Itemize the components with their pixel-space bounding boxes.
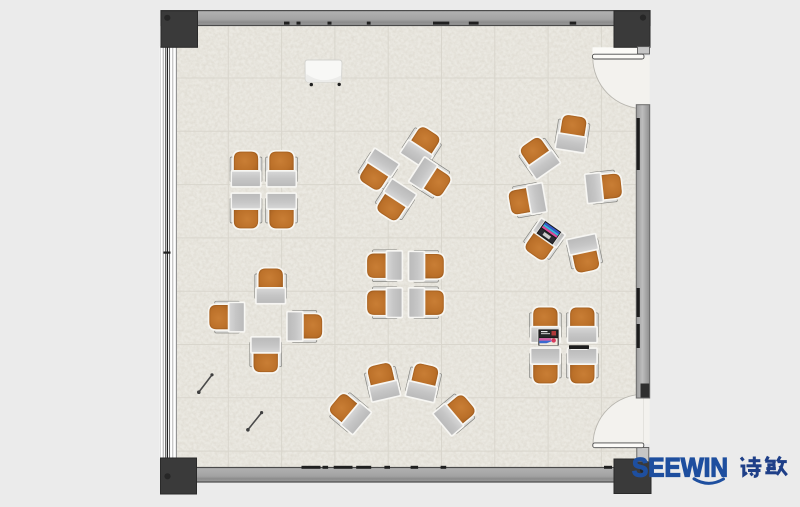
svg-text:SEEWIN: SEEWIN (632, 453, 728, 483)
